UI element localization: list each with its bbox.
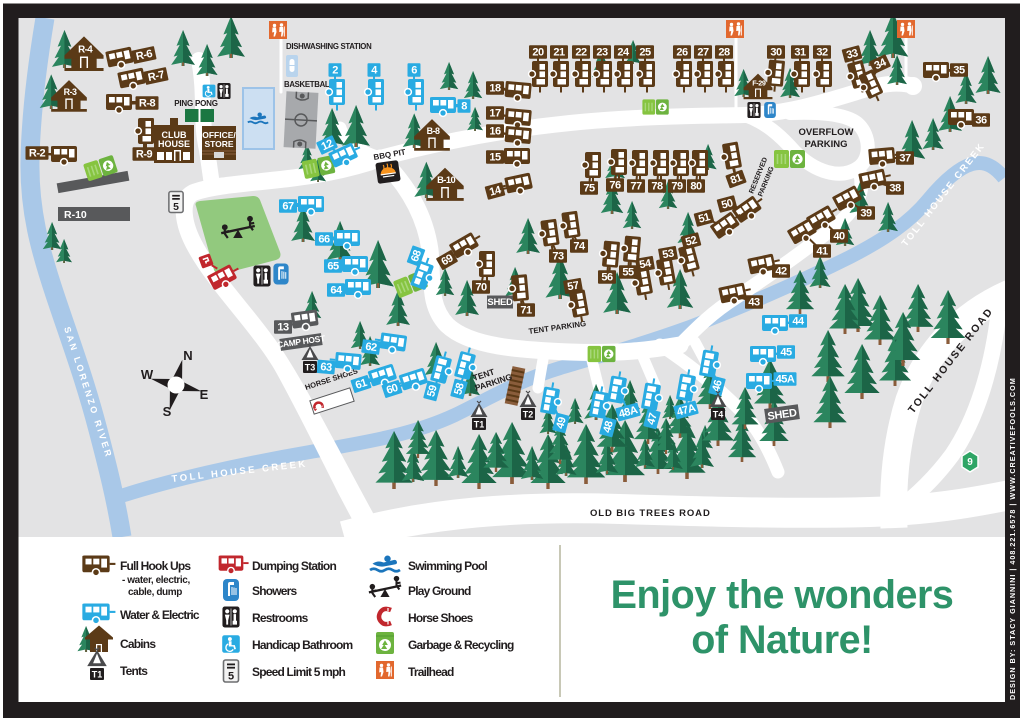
- svg-text:STORE: STORE: [204, 139, 233, 149]
- svg-text:OVERFLOW: OVERFLOW: [799, 127, 854, 138]
- svg-text:B-10: B-10: [437, 175, 455, 185]
- svg-text:28: 28: [718, 46, 730, 58]
- svg-text:PARKING: PARKING: [804, 139, 847, 150]
- svg-text:Enjoy the wonders: Enjoy the wonders: [611, 573, 954, 617]
- svg-text:71: 71: [520, 304, 532, 316]
- svg-text:HOUSE: HOUSE: [158, 139, 190, 149]
- svg-text:T2: T2: [523, 409, 534, 419]
- svg-text:44: 44: [792, 315, 805, 327]
- svg-text:OLD BIG TREES ROAD: OLD BIG TREES ROAD: [590, 508, 711, 519]
- svg-text:20: 20: [532, 46, 544, 58]
- svg-text:32: 32: [816, 46, 828, 58]
- svg-text:DISHWASHING STATION: DISHWASHING STATION: [286, 42, 372, 51]
- svg-text:37: 37: [899, 152, 911, 164]
- svg-text:15: 15: [489, 151, 501, 163]
- svg-text:31: 31: [794, 46, 806, 58]
- svg-text:E: E: [200, 387, 209, 402]
- svg-text:SHED: SHED: [487, 297, 513, 308]
- svg-text:Speed Limit 5 mph: Speed Limit 5 mph: [252, 665, 346, 679]
- svg-text:36: 36: [975, 114, 987, 126]
- svg-text:Restrooms: Restrooms: [252, 611, 309, 625]
- svg-text:Dumping Station: Dumping Station: [252, 559, 336, 573]
- svg-text:38: 38: [889, 182, 901, 194]
- svg-text:PING PONG: PING PONG: [174, 99, 218, 108]
- svg-text:65: 65: [327, 260, 339, 272]
- svg-text:Cabins: Cabins: [120, 637, 156, 651]
- svg-text:Garbage & Recycling: Garbage & Recycling: [408, 638, 514, 652]
- svg-text:23: 23: [596, 46, 608, 58]
- svg-text:62: 62: [365, 341, 378, 355]
- svg-text:80: 80: [690, 180, 702, 192]
- svg-text:cable, dump: cable, dump: [128, 587, 182, 598]
- svg-text:43: 43: [748, 296, 760, 308]
- svg-text:77: 77: [630, 180, 642, 192]
- svg-text:55: 55: [622, 266, 634, 278]
- svg-text:41: 41: [816, 245, 828, 257]
- svg-text:79: 79: [671, 180, 683, 192]
- svg-text:T1: T1: [474, 419, 485, 429]
- svg-text:R-2: R-2: [29, 147, 46, 159]
- svg-text:N: N: [183, 348, 192, 363]
- svg-text:30: 30: [770, 46, 782, 58]
- svg-text:Trailhead: Trailhead: [408, 665, 454, 679]
- svg-text:T3: T3: [305, 362, 316, 372]
- svg-text:of Nature!: of Nature!: [691, 618, 873, 662]
- svg-text:45A: 45A: [776, 373, 795, 385]
- svg-text:DESIGN BY: STACY GIANNINI |: DESIGN BY: STACY GIANNINI | 408.221.6578…: [1008, 377, 1017, 700]
- svg-text:W: W: [141, 367, 154, 382]
- svg-text:BASKETBALL: BASKETBALL: [284, 80, 334, 89]
- svg-text:78: 78: [651, 180, 663, 192]
- svg-text:Full Hook Ups: Full Hook Ups: [120, 559, 191, 573]
- svg-text:Horse Shoes: Horse Shoes: [408, 611, 474, 625]
- svg-text:39: 39: [860, 207, 872, 219]
- svg-text:25: 25: [639, 46, 651, 58]
- svg-text:45: 45: [780, 346, 792, 358]
- svg-text:B-8: B-8: [427, 126, 440, 136]
- svg-text:T4: T4: [713, 409, 724, 419]
- svg-text:Water & Electric: Water & Electric: [120, 608, 200, 622]
- svg-text:R-8: R-8: [139, 97, 156, 109]
- svg-text:21: 21: [553, 46, 565, 58]
- svg-text:R-4: R-4: [78, 44, 93, 55]
- svg-text:Handicap Bathroom: Handicap Bathroom: [252, 638, 353, 652]
- svg-text:Showers: Showers: [252, 584, 298, 598]
- svg-text:Tents: Tents: [120, 664, 148, 678]
- svg-text:R-3: R-3: [64, 87, 77, 97]
- svg-text:35: 35: [953, 64, 965, 76]
- svg-text:Play Ground: Play Ground: [408, 584, 471, 598]
- svg-text:76: 76: [609, 179, 621, 191]
- svg-text:42: 42: [775, 265, 787, 277]
- svg-text:67: 67: [282, 200, 294, 212]
- svg-text:73: 73: [552, 250, 564, 262]
- svg-text:R-9: R-9: [136, 148, 153, 160]
- svg-text:75: 75: [583, 182, 595, 194]
- svg-text:16: 16: [489, 125, 501, 137]
- svg-text:66: 66: [318, 233, 330, 245]
- svg-text:22: 22: [575, 46, 587, 58]
- svg-text:64: 64: [330, 284, 343, 296]
- svg-text:2: 2: [332, 64, 338, 76]
- svg-text:S: S: [163, 404, 172, 419]
- svg-text:8: 8: [461, 100, 467, 112]
- svg-text:6: 6: [411, 64, 417, 76]
- svg-text:70: 70: [475, 281, 487, 293]
- svg-text:13: 13: [277, 321, 289, 333]
- svg-text:T1: T1: [92, 670, 103, 680]
- svg-text:F-29: F-29: [752, 79, 766, 88]
- svg-text:74: 74: [573, 240, 586, 252]
- svg-text:40: 40: [833, 230, 845, 242]
- svg-text:24: 24: [617, 46, 630, 58]
- svg-text:Swimming Pool: Swimming Pool: [408, 559, 487, 573]
- svg-text:27: 27: [697, 46, 709, 58]
- svg-text:26: 26: [676, 46, 688, 58]
- svg-text:56: 56: [601, 271, 613, 283]
- svg-text:18: 18: [489, 82, 501, 94]
- svg-text:17: 17: [489, 107, 501, 119]
- svg-text:63: 63: [320, 361, 333, 374]
- svg-text:- water, electric,: - water, electric,: [122, 575, 190, 586]
- svg-text:R-10: R-10: [64, 209, 87, 221]
